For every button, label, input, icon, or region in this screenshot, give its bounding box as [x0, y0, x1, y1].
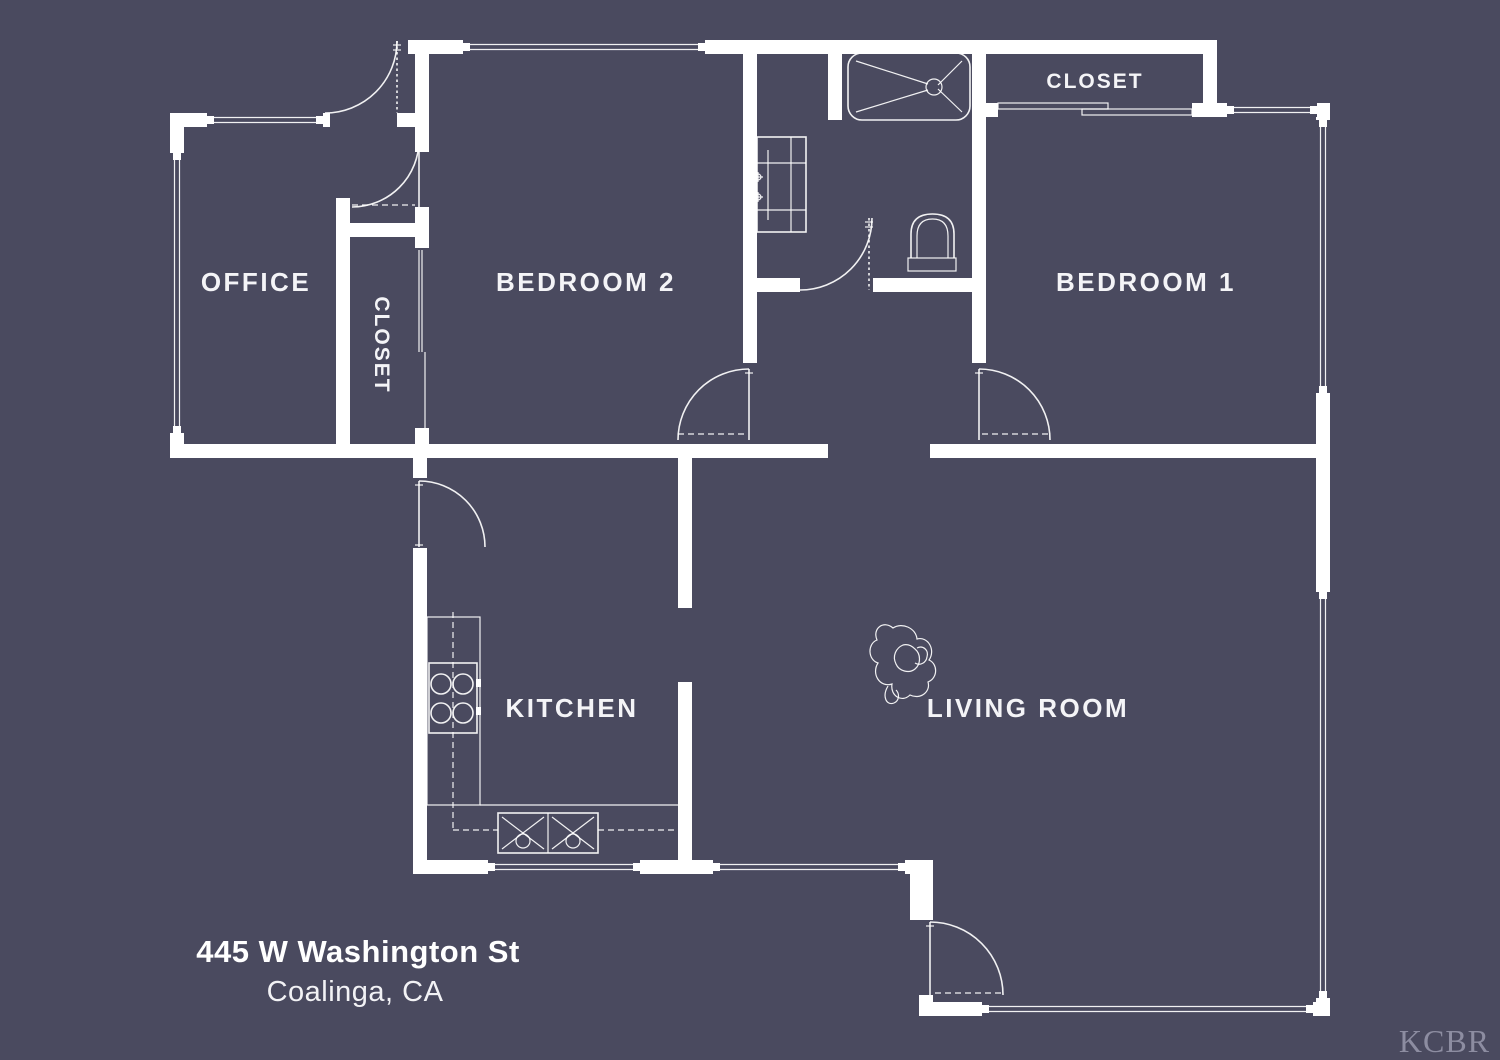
floorplan-page: OFFICE CLOSET BEDROOM 2 CLOSET BEDROOM 1… [0, 0, 1500, 1060]
watermark-logo: KCBR [1399, 1023, 1490, 1059]
floorplan-svg: OFFICE CLOSET BEDROOM 2 CLOSET BEDROOM 1… [0, 0, 1500, 1060]
window-living-right [1316, 592, 1330, 998]
label-bedroom1: BEDROOM 1 [1056, 267, 1236, 297]
window-office-left [170, 153, 184, 433]
label-bedroom2: BEDROOM 2 [496, 267, 676, 297]
label-hall-closet: CLOSET [370, 296, 393, 393]
label-office: OFFICE [201, 267, 311, 297]
window-bedroom2-top [463, 40, 705, 54]
label-bedroom1-closet: CLOSET [1046, 70, 1143, 93]
window-living-southwest [713, 860, 905, 874]
window-bedroom1-right [1316, 120, 1330, 393]
label-kitchen: KITCHEN [505, 693, 638, 723]
window-living-bottom [982, 1002, 1313, 1016]
window-bedroom1-top [1227, 103, 1317, 117]
label-living-room: LIVING ROOM [927, 693, 1129, 723]
window-kitchen-bottom [488, 860, 640, 874]
window-office-top [207, 113, 323, 127]
address-line1: 445 W Washington St [196, 934, 520, 969]
address-line2: Coalinga, CA [267, 976, 444, 1008]
